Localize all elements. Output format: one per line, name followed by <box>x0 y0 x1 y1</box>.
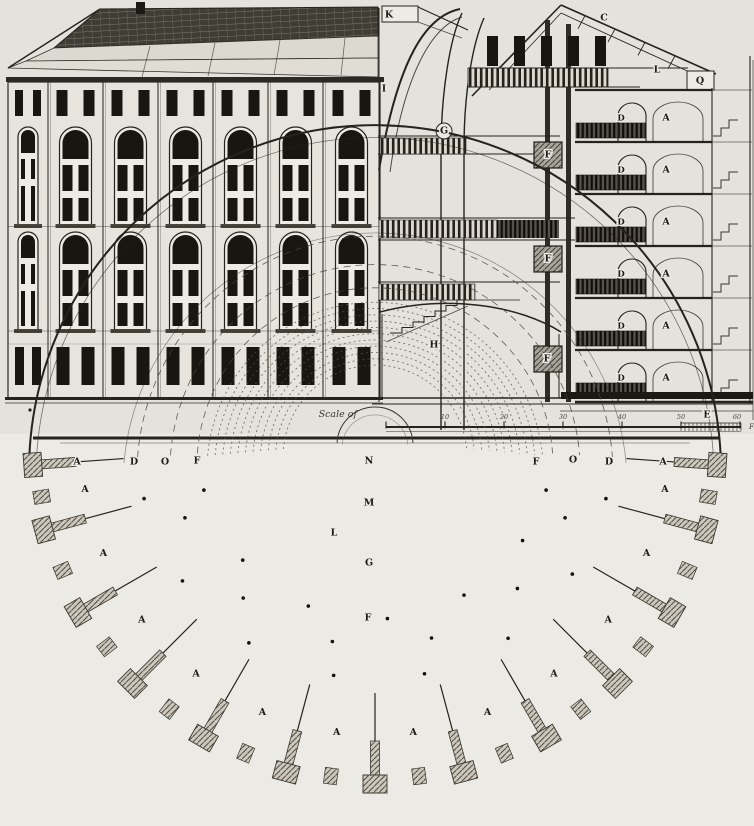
section-label-L: L <box>654 65 661 76</box>
plan-cell-label: A <box>258 707 267 718</box>
plan-cell-label: A <box>99 548 108 559</box>
plan-top-label-O: O <box>569 455 577 466</box>
section-cell-door-label: D <box>617 166 625 176</box>
scale-tick-label: 50 <box>677 413 685 421</box>
scale-tick-label: 20 <box>499 413 508 421</box>
plan-center-label-G: G <box>365 558 373 569</box>
plan-cell-label: A <box>483 707 492 718</box>
scale-unit: Ft <box>748 423 754 431</box>
scale-tick-label: 30 <box>559 413 567 421</box>
section-label-G: G <box>440 126 448 137</box>
plan-top-label-D: D <box>605 457 613 468</box>
section-cell-door-label: D <box>617 218 625 228</box>
plan-top-label-D: D <box>130 457 138 468</box>
section-label-F: F <box>545 254 552 265</box>
plan-top-label-A: A <box>72 457 81 468</box>
plan-top-label-A: A <box>658 457 667 468</box>
plan-center-label-L: L <box>331 528 338 539</box>
elevation-drawing <box>5 2 384 412</box>
scale-tick-label: 60 <box>733 413 741 421</box>
plan-cell-label: A <box>660 484 669 495</box>
section-cell-label: A <box>661 373 670 384</box>
section-cell-door-label: D <box>617 374 625 384</box>
plan-top-label-F: F <box>194 456 201 467</box>
section-label-F: F <box>544 354 551 365</box>
plan-top-label-N: N <box>365 456 374 467</box>
plan-cell-label: A <box>642 548 651 559</box>
plan-cell-label: A <box>332 727 341 738</box>
plan-top-label-O: O <box>161 457 169 468</box>
plan-top-label-F: F <box>533 457 540 468</box>
section-label-I: I <box>382 84 387 95</box>
section-label-C: C <box>600 13 608 24</box>
section-cell-label: A <box>661 217 670 228</box>
section-label-Q: Q <box>696 76 704 87</box>
section-cell-label: A <box>661 321 670 332</box>
panopticon-figure: Scale of102030405060Ft KCIGLQFFFHEDADADA… <box>0 0 754 826</box>
section-label-F: F <box>545 150 552 161</box>
plan-cell-label: A <box>409 727 418 738</box>
section-cell-door-label: D <box>617 270 625 280</box>
section-cell-door-label: D <box>617 114 625 124</box>
section-label-H: H <box>430 340 439 351</box>
plan-cell-label: A <box>549 669 558 680</box>
section-cell-label: A <box>661 165 670 176</box>
plan-cell-label: A <box>80 484 89 495</box>
section-cell-label: A <box>661 269 670 280</box>
section-cell-door-label: D <box>617 322 625 332</box>
plan-cell-label: A <box>137 614 146 625</box>
plan-cell-label: A <box>604 614 613 625</box>
plan-cell-label: A <box>191 669 200 680</box>
panopticon-drawing: Scale of102030405060Ft KCIGLQFFFHEDADADA… <box>0 0 754 826</box>
section-label-K: K <box>385 10 394 21</box>
scale-tick-label: 10 <box>441 413 449 421</box>
plan-center-label-M: M <box>364 498 375 509</box>
section-cell-label: A <box>661 113 670 124</box>
plan-center-label-F: F <box>365 613 372 624</box>
section-label-E: E <box>703 410 710 421</box>
